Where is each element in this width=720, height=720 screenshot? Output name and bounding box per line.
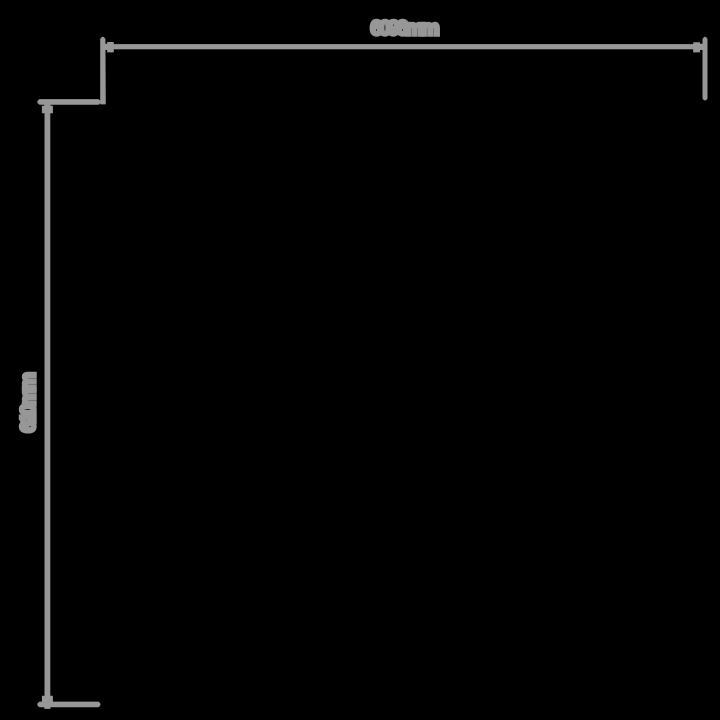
svg-text:610mm: 610mm xyxy=(17,373,40,433)
svg-text:6096mm: 6096mm xyxy=(370,17,438,40)
